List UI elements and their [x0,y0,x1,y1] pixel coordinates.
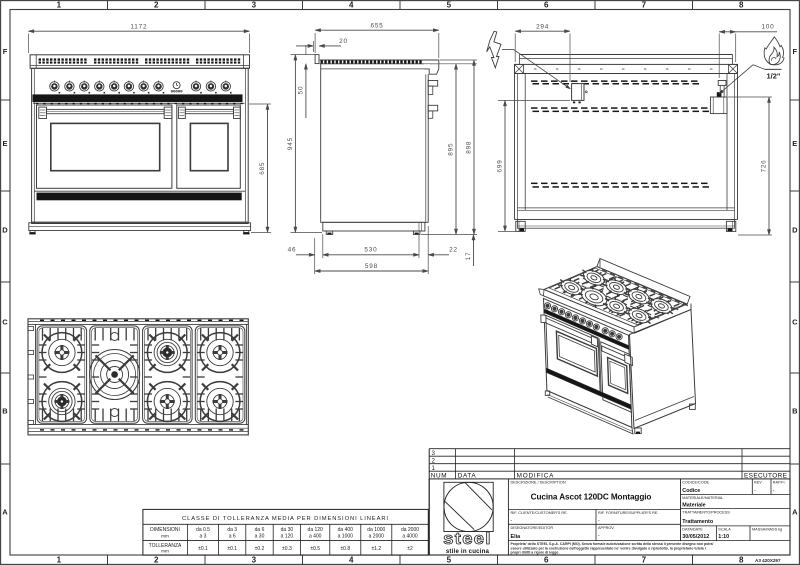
svg-text:a 1000: a 1000 [338,534,354,540]
svg-text:D: D [792,226,798,235]
svg-text:±0.2: ±0.2 [255,546,265,552]
svg-text:945: 945 [287,137,294,150]
svg-text:1172: 1172 [130,24,147,31]
svg-text:REV.: REV. [754,480,763,484]
svg-text:MODIFICA: MODIFICA [517,472,555,479]
svg-text:685: 685 [259,162,266,175]
svg-text:699: 699 [496,159,503,172]
svg-text:DISEGNATORE/EDITOR: DISEGNATORE/EDITOR [511,526,554,530]
svg-text:RAP.FI.: RAP.FI. [773,480,786,484]
svg-text:TRATTAMENTO/PROCESS: TRATTAMENTO/PROCESS [682,510,730,514]
svg-text:294: 294 [536,24,549,31]
svg-text:da 1000: da 1000 [367,527,385,533]
svg-text:B: B [2,407,8,416]
svg-text:ESECUTORE: ESECUTORE [744,472,787,479]
svg-text:da 30: da 30 [281,527,294,533]
svg-text:4: 4 [349,1,354,10]
svg-text:E: E [2,139,7,148]
svg-text:RIF. FORNITURE/SUPPLIER'S RE.: RIF. FORNITURE/SUPPLIER'S RE. [598,511,658,515]
svg-text:2: 2 [432,457,436,464]
svg-text:17: 17 [465,252,472,261]
svg-text:50: 50 [297,86,304,95]
svg-text:a 6: a 6 [229,534,236,540]
svg-text:Elia: Elia [511,534,522,540]
svg-text:Materiale: Materiale [682,503,705,509]
svg-text:da 400: da 400 [338,527,354,533]
svg-text:6: 6 [544,556,549,565]
svg-text:a 120: a 120 [281,534,294,540]
svg-text:1/2": 1/2" [767,72,781,81]
svg-text:steel: steel [443,529,492,548]
svg-text:MATERIALE/MATERIAL: MATERIALE/MATERIAL [682,496,723,500]
svg-text:22: 22 [449,246,458,253]
svg-text:DESCRIZIONE / DESCRIPTION: DESCRIZIONE / DESCRIPTION [511,480,566,484]
svg-text:F: F [793,47,798,56]
svg-text:A: A [792,508,798,517]
svg-text:1: 1 [57,1,62,10]
svg-text:da 120: da 120 [308,527,324,533]
svg-text:6: 6 [544,1,549,10]
svg-text:E: E [792,139,797,148]
svg-text:5: 5 [447,1,452,10]
svg-text:B: B [792,407,798,416]
svg-text:3: 3 [252,556,257,565]
svg-text:D: D [2,226,8,235]
svg-text:1:10: 1:10 [718,534,729,540]
svg-text:7: 7 [642,556,647,565]
svg-text:30/05/2012: 30/05/2012 [682,534,709,540]
svg-text:mm: mm [161,549,169,554]
svg-text:DIMENSIONI: DIMENSIONI [150,527,180,533]
svg-text:a 3: a 3 [200,534,207,540]
svg-text:±0.3: ±0.3 [282,546,292,552]
svg-text:Trattamento: Trattamento [682,519,714,525]
svg-text:F: F [3,47,8,56]
svg-text:DATA/DATE: DATA/DATE [682,527,703,531]
svg-text:Codice: Codice [682,488,700,494]
svg-text:C: C [792,318,798,327]
svg-text:da 2000: da 2000 [401,527,419,533]
svg-text:±0.8: ±0.8 [340,546,350,552]
svg-text:DATA: DATA [458,472,477,479]
svg-text:C: C [2,318,8,327]
svg-text:1: 1 [432,465,436,472]
svg-text:4: 4 [349,556,354,565]
svg-text:726: 726 [760,159,767,172]
svg-text:a 2000: a 2000 [369,534,385,540]
svg-text:±1.2: ±1.2 [371,546,381,552]
svg-text:propri diritti a rigore di leg: propri diritti a rigore di legge. [511,551,560,555]
svg-text:da 0.5: da 0.5 [196,527,210,533]
svg-text:a 400: a 400 [309,534,322,540]
svg-text:3: 3 [252,1,257,10]
svg-text:da 6: da 6 [255,527,265,533]
svg-text:898: 898 [465,141,472,154]
svg-text:895: 895 [447,143,454,156]
svg-text:5: 5 [447,556,452,565]
svg-text:CODICE/CODE: CODICE/CODE [682,480,709,484]
svg-text:655: 655 [370,23,383,30]
svg-text:46: 46 [288,247,297,254]
svg-text:a 4000: a 4000 [402,534,418,540]
svg-text:APPROV.: APPROV. [598,526,615,530]
svg-text:stile in cucina: stile in cucina [446,548,490,555]
svg-text:±0.1: ±0.1 [198,546,208,552]
svg-text:A: A [2,508,8,517]
svg-text:3: 3 [432,450,436,457]
svg-text:100: 100 [761,24,774,31]
svg-text:1: 1 [57,556,62,565]
svg-text:CLASSE DI TOLLERANZA MEDIA PER: CLASSE DI TOLLERANZA MEDIA PER DIMENSION… [182,516,389,522]
svg-text:NUM: NUM [431,472,447,479]
svg-text:598: 598 [365,263,378,270]
svg-text:530: 530 [364,247,377,254]
svg-text:mm: mm [161,534,169,539]
svg-text:a 30: a 30 [255,534,265,540]
svg-text:SCALA: SCALA [718,527,731,531]
svg-text:20: 20 [339,38,348,45]
svg-text:A3 420X297: A3 420X297 [755,558,781,563]
svg-text:7: 7 [642,1,647,10]
svg-text:±2: ±2 [407,546,413,552]
svg-text:2: 2 [154,1,159,10]
svg-text:±0.5: ±0.5 [310,546,320,552]
svg-text:8: 8 [739,556,744,565]
svg-text:2: 2 [154,556,159,565]
svg-text:8: 8 [739,1,744,10]
svg-text:MASSA/MASS kg: MASSA/MASS kg [752,527,782,531]
svg-text:±0.1: ±0.1 [227,546,237,552]
svg-text:Cucina Ascot 120DC Montaggio: Cucina Ascot 120DC Montaggio [531,493,652,502]
svg-text:RIF. CLIENTE/CUSTOMER'S RE.: RIF. CLIENTE/CUSTOMER'S RE. [511,511,568,515]
svg-text:da 3: da 3 [227,527,237,533]
